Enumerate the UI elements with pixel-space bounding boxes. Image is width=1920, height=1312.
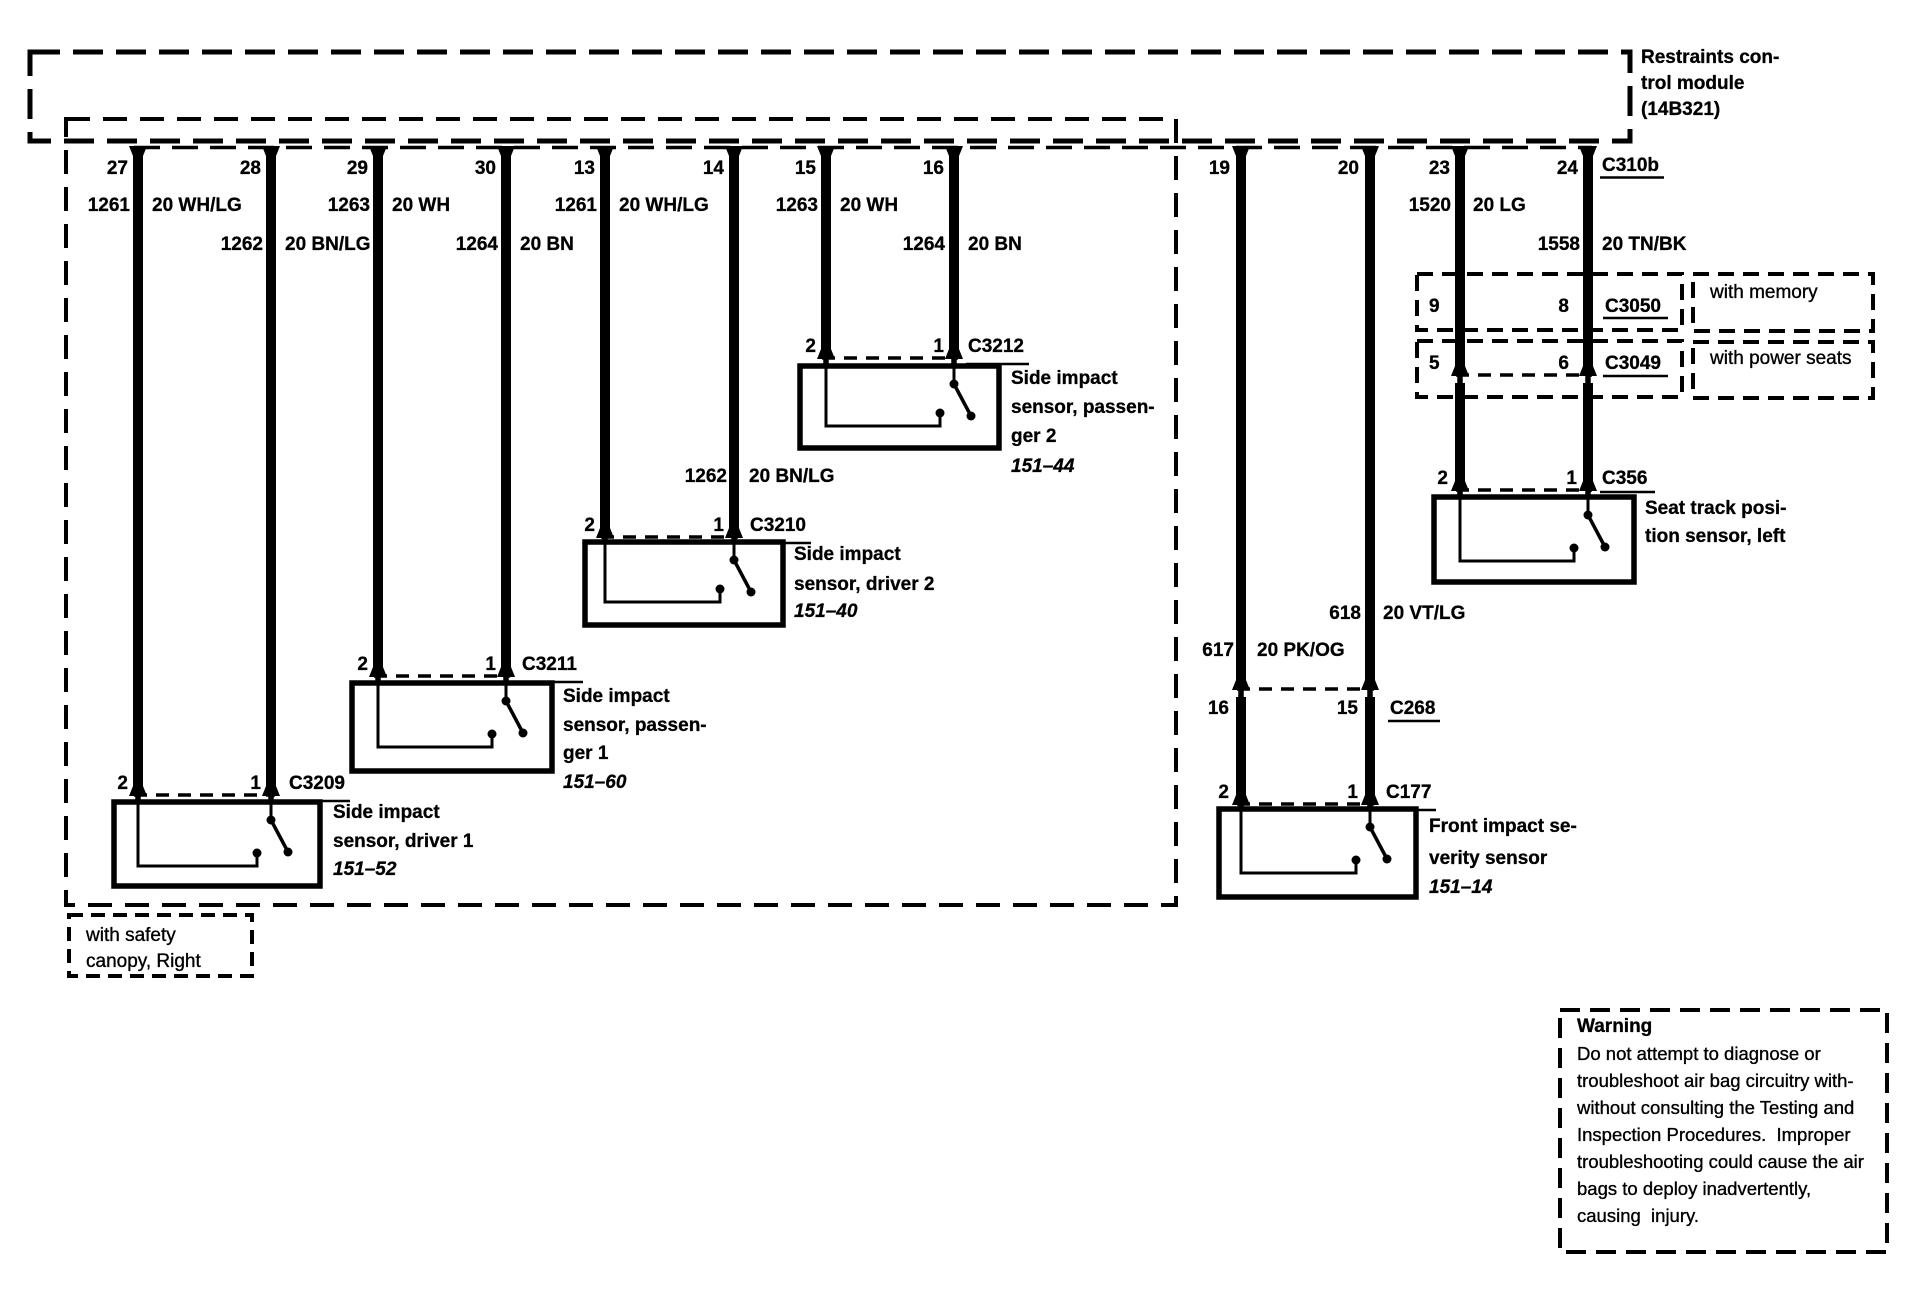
svg-text:bags to deploy inadvertently,: bags to deploy inadvertently,	[1577, 1178, 1811, 1199]
svg-text:1: 1	[933, 336, 944, 357]
svg-text:Restraints con-: Restraints con-	[1641, 47, 1779, 68]
svg-text:15: 15	[795, 158, 817, 179]
svg-text:30: 30	[475, 158, 496, 179]
svg-text:151–44: 151–44	[1011, 456, 1075, 477]
svg-text:1558: 1558	[1538, 234, 1580, 255]
svg-text:1261: 1261	[88, 195, 131, 216]
svg-text:1: 1	[1566, 468, 1577, 489]
svg-text:20 WH/LG: 20 WH/LG	[619, 195, 709, 216]
svg-text:1263: 1263	[328, 195, 370, 216]
svg-text:6: 6	[1558, 353, 1569, 374]
svg-text:20 BN: 20 BN	[520, 234, 574, 255]
svg-text:C3209: C3209	[289, 773, 345, 794]
svg-text:1: 1	[250, 773, 261, 794]
svg-text:617: 617	[1202, 640, 1234, 661]
svg-text:5: 5	[1429, 353, 1440, 374]
svg-text:2: 2	[357, 654, 368, 675]
svg-text:20 BN/LG: 20 BN/LG	[285, 234, 371, 255]
svg-text:2: 2	[584, 515, 595, 536]
svg-text:Side impact: Side impact	[333, 802, 440, 823]
svg-text:Front impact se-: Front impact se-	[1429, 816, 1577, 837]
svg-text:sensor, passen-: sensor, passen-	[563, 715, 707, 736]
svg-text:without consulting the Testing: without consulting the Testing and	[1576, 1097, 1854, 1118]
svg-text:1264: 1264	[903, 234, 946, 255]
svg-text:20 VT/LG: 20 VT/LG	[1383, 603, 1465, 624]
svg-text:20 PK/OG: 20 PK/OG	[1257, 640, 1345, 661]
svg-text:16: 16	[1208, 698, 1229, 719]
svg-text:2: 2	[117, 773, 128, 794]
svg-text:with safety: with safety	[85, 925, 176, 946]
svg-text:1: 1	[1347, 782, 1358, 803]
svg-text:2: 2	[1218, 782, 1229, 803]
svg-text:1263: 1263	[776, 195, 818, 216]
svg-text:19: 19	[1209, 158, 1230, 179]
svg-text:28: 28	[240, 158, 261, 179]
svg-text:27: 27	[107, 158, 128, 179]
svg-text:C177: C177	[1386, 782, 1431, 803]
svg-text:C356: C356	[1602, 468, 1647, 489]
svg-text:151–52: 151–52	[333, 859, 397, 880]
svg-text:(14B321): (14B321)	[1641, 99, 1720, 120]
svg-text:2: 2	[805, 336, 816, 357]
svg-text:20 WH: 20 WH	[840, 195, 898, 216]
svg-text:15: 15	[1337, 698, 1359, 719]
svg-text:1261: 1261	[555, 195, 598, 216]
svg-text:151–40: 151–40	[794, 601, 858, 622]
svg-text:troubleshooting could cause th: troubleshooting could cause the air	[1577, 1151, 1864, 1172]
svg-text:16: 16	[923, 158, 944, 179]
svg-text:C3211: C3211	[522, 654, 577, 675]
svg-text:causing injury.: causing injury.	[1577, 1205, 1699, 1226]
svg-text:1264: 1264	[456, 234, 499, 255]
svg-text:ger 1: ger 1	[563, 743, 609, 764]
svg-text:Seat track posi-: Seat track posi-	[1645, 498, 1787, 519]
svg-text:13: 13	[574, 158, 595, 179]
svg-text:Warning: Warning	[1577, 1016, 1652, 1037]
svg-text:20 BN: 20 BN	[968, 234, 1022, 255]
svg-text:C3212: C3212	[968, 336, 1024, 357]
svg-text:8: 8	[1558, 296, 1569, 317]
svg-text:sensor, driver 2: sensor, driver 2	[794, 574, 934, 595]
svg-text:24: 24	[1557, 158, 1579, 179]
svg-text:Side impact: Side impact	[794, 544, 901, 565]
svg-text:with memory: with memory	[1709, 282, 1818, 303]
svg-text:troubleshoot air bag circuitry: troubleshoot air bag circuitry with-	[1577, 1070, 1854, 1091]
svg-text:29: 29	[347, 158, 368, 179]
svg-text:151–60: 151–60	[563, 772, 627, 793]
svg-text:20 WH/LG: 20 WH/LG	[152, 195, 242, 216]
svg-text:verity sensor: verity sensor	[1429, 848, 1548, 869]
svg-text:151–14: 151–14	[1429, 877, 1493, 898]
svg-text:with power seats: with power seats	[1709, 348, 1852, 369]
svg-text:trol module: trol module	[1641, 73, 1744, 94]
svg-text:14: 14	[703, 158, 725, 179]
svg-text:2: 2	[1437, 468, 1448, 489]
svg-text:1262: 1262	[685, 466, 727, 487]
svg-text:1: 1	[713, 515, 724, 536]
svg-text:C3210: C3210	[750, 515, 806, 536]
svg-text:C3050: C3050	[1605, 296, 1661, 317]
svg-text:Inspection Procedures. Improp: Inspection Procedures. Improper	[1577, 1124, 1851, 1145]
svg-text:1520: 1520	[1409, 195, 1451, 216]
svg-text:618: 618	[1329, 603, 1361, 624]
svg-text:20: 20	[1338, 158, 1359, 179]
svg-text:20 TN/BK: 20 TN/BK	[1602, 234, 1687, 255]
svg-text:20 BN/LG: 20 BN/LG	[749, 466, 835, 487]
svg-text:23: 23	[1429, 158, 1450, 179]
svg-text:20 WH: 20 WH	[392, 195, 450, 216]
svg-text:1262: 1262	[221, 234, 263, 255]
svg-text:Side impact: Side impact	[563, 686, 670, 707]
svg-text:canopy, Right: canopy, Right	[86, 951, 201, 972]
svg-text:sensor, driver 1: sensor, driver 1	[333, 831, 474, 852]
svg-text:C310b: C310b	[1602, 155, 1659, 176]
svg-text:Do not attempt to diagnose or: Do not attempt to diagnose or	[1577, 1043, 1821, 1064]
svg-text:C268: C268	[1390, 698, 1435, 719]
svg-text:ger 2: ger 2	[1011, 426, 1056, 447]
svg-text:tion sensor, left: tion sensor, left	[1645, 526, 1786, 547]
svg-text:20 LG: 20 LG	[1473, 195, 1526, 216]
svg-text:C3049: C3049	[1605, 353, 1661, 374]
svg-text:9: 9	[1429, 296, 1440, 317]
svg-text:sensor, passen-: sensor, passen-	[1011, 397, 1155, 418]
svg-text:1: 1	[485, 654, 496, 675]
svg-text:Side impact: Side impact	[1011, 368, 1118, 389]
